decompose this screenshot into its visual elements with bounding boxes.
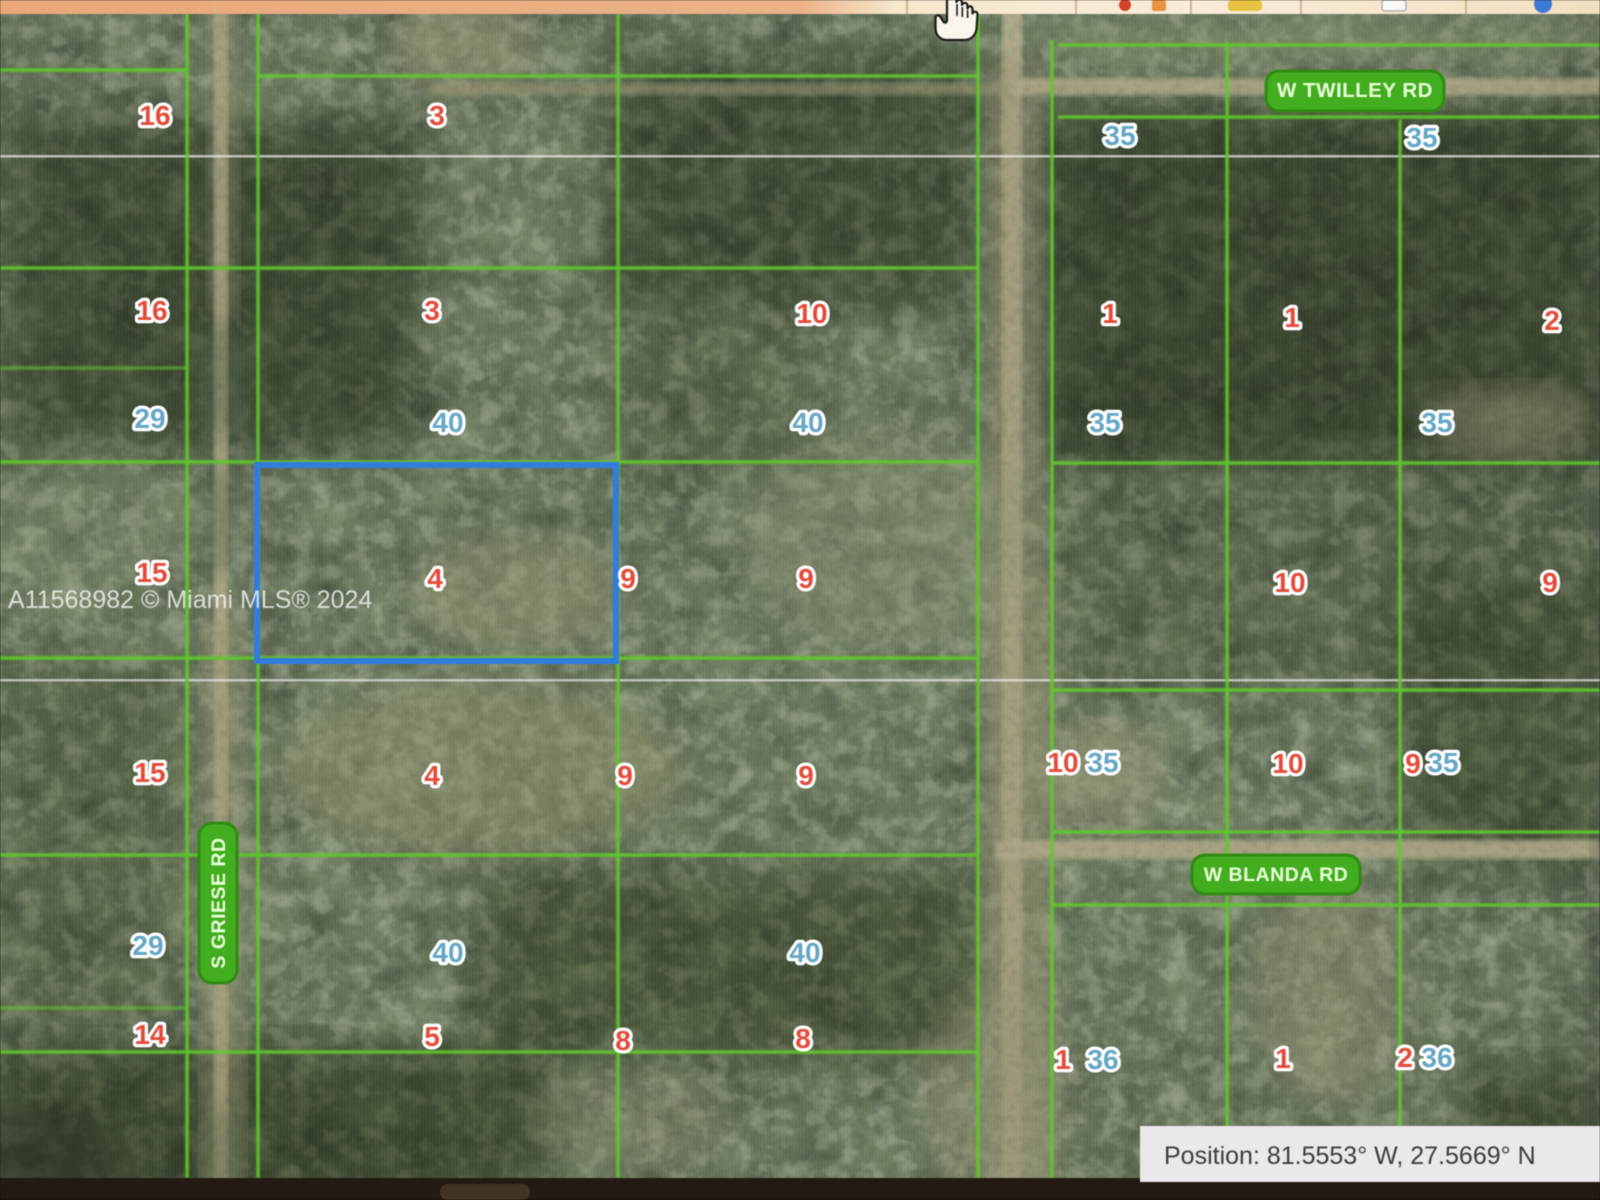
svg-text:9: 9 <box>617 760 633 791</box>
svg-text:Position: 81.5553° W, 27.5669°: Position: 81.5553° W, 27.5669° N <box>1164 1142 1536 1170</box>
svg-text:35: 35 <box>1104 120 1135 151</box>
svg-text:4: 4 <box>424 760 440 791</box>
svg-text:9: 9 <box>620 563 636 594</box>
svg-text:2: 2 <box>1544 305 1560 336</box>
svg-text:9: 9 <box>1542 567 1558 598</box>
svg-text:9: 9 <box>1405 748 1421 779</box>
svg-text:9: 9 <box>798 760 814 791</box>
svg-text:40: 40 <box>432 407 463 438</box>
svg-text:2: 2 <box>1397 1042 1413 1073</box>
svg-text:10: 10 <box>1274 567 1305 598</box>
svg-text:8: 8 <box>615 1025 631 1056</box>
svg-text:1: 1 <box>1275 1043 1291 1074</box>
svg-text:10: 10 <box>1272 748 1303 779</box>
svg-text:16: 16 <box>136 295 167 326</box>
svg-text:40: 40 <box>792 407 823 438</box>
svg-text:40: 40 <box>432 937 463 968</box>
svg-text:3: 3 <box>424 295 440 326</box>
svg-text:15: 15 <box>134 757 165 788</box>
svg-text:10: 10 <box>796 298 827 329</box>
svg-text:35: 35 <box>1406 122 1437 153</box>
svg-text:W TWILLEY RD: W TWILLEY RD <box>1277 79 1433 102</box>
svg-text:35: 35 <box>1421 407 1452 438</box>
svg-text:10: 10 <box>1047 747 1078 778</box>
svg-text:15: 15 <box>136 557 167 588</box>
svg-text:40: 40 <box>789 937 820 968</box>
svg-text:36: 36 <box>1421 1042 1452 1073</box>
svg-text:35: 35 <box>1427 747 1458 778</box>
svg-text:1: 1 <box>1284 302 1300 333</box>
svg-text:4: 4 <box>427 563 443 594</box>
svg-text:36: 36 <box>1087 1044 1118 1075</box>
svg-text:S GRIESE RD: S GRIESE RD <box>208 837 230 968</box>
svg-text:A11568982 © Miami MLS® 2024: A11568982 © Miami MLS® 2024 <box>8 586 372 614</box>
svg-text:3: 3 <box>429 100 445 131</box>
svg-text:16: 16 <box>139 100 170 131</box>
svg-text:9: 9 <box>798 563 814 594</box>
svg-text:14: 14 <box>134 1019 166 1050</box>
svg-text:5: 5 <box>424 1021 440 1052</box>
svg-text:8: 8 <box>795 1023 811 1054</box>
svg-text:1: 1 <box>1055 1044 1071 1075</box>
svg-text:29: 29 <box>132 930 163 961</box>
svg-text:W BLANDA RD: W BLANDA RD <box>1204 864 1349 886</box>
svg-text:35: 35 <box>1087 747 1118 778</box>
svg-text:35: 35 <box>1089 407 1120 438</box>
svg-text:1: 1 <box>1102 298 1118 329</box>
svg-text:29: 29 <box>134 403 165 434</box>
